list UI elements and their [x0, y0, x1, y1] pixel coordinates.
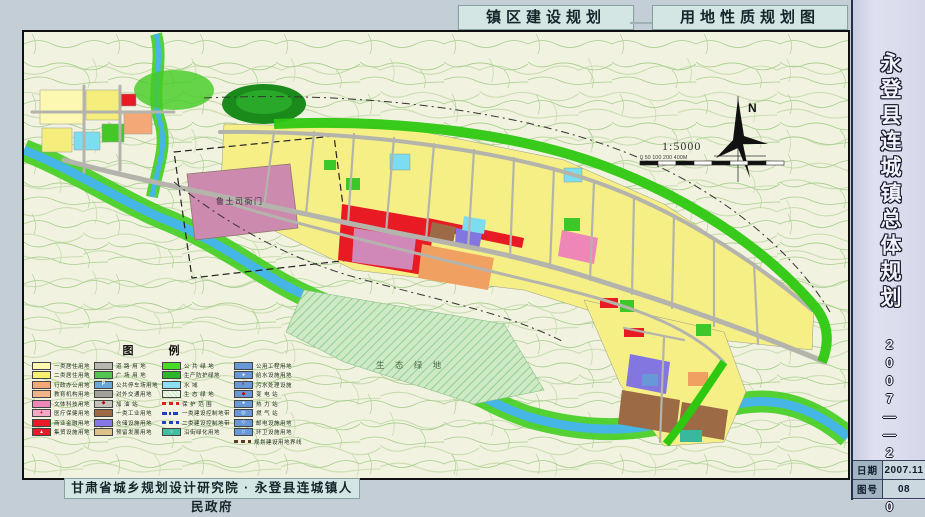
- legend-label: 公用工程用地: [256, 362, 292, 370]
- legend-swatch: +: [32, 409, 51, 417]
- legend-item: 规划建设用地界线: [234, 438, 302, 445]
- legend-label: 保 护 范 围: [182, 400, 212, 408]
- legend-swatch: [162, 381, 181, 389]
- legend-label: 热 力 站: [256, 400, 278, 408]
- legend-item: 水 域: [162, 381, 230, 388]
- legend-item: 文体科技用地: [32, 400, 90, 407]
- legend-swatch: [32, 390, 51, 398]
- legend-label: 二类居住用地: [54, 371, 90, 379]
- legend-item: 二类居住用地: [32, 372, 90, 379]
- legend-swatch: [32, 419, 51, 427]
- legend-swatch-mark: □: [242, 430, 245, 435]
- legend-swatch: ◎: [234, 409, 253, 417]
- legend-item: ●给水设施用地: [234, 372, 302, 379]
- sidebar-vertical-title: 永登县连城镇总体规划 2007——2020: [874, 52, 904, 517]
- legend-item: 公用工程用地: [234, 362, 302, 369]
- map-frame: N 1:5000 0 50 100 200 400M 鲁土司衙门 生 态 绿 地…: [22, 30, 850, 480]
- legend-swatch: ●: [234, 400, 253, 408]
- legend-label: 环卫设施用地: [256, 428, 292, 436]
- sheet-info-table: 日期 2007.11 图号 08: [853, 460, 925, 499]
- legend-columns: 一类居住用地二类居住用地行政办公用地教育机构用地文体科技用地+医疗保健用地商业金…: [32, 362, 270, 445]
- legend-item: 广 场 用 地: [94, 372, 158, 379]
- legend-item: ◎燃 气 站: [234, 410, 302, 417]
- legend-swatch: ●: [234, 371, 253, 379]
- sheet-title-left: 镇区建设规划: [458, 5, 634, 30]
- legend-label: 商业金融用地: [54, 419, 90, 427]
- legend-item: ◆变 电 站: [234, 391, 302, 398]
- legend-item: 生产防护绿地: [162, 372, 230, 379]
- legend-label: 预留发展用地: [116, 428, 152, 436]
- legend-label: 文体科技用地: [54, 400, 90, 408]
- legend-item: 仓储设施用地: [94, 419, 158, 426]
- legend-item: ◆加 油 站: [94, 400, 158, 407]
- legend-label: 变 电 站: [256, 390, 278, 398]
- legend-swatch: [162, 362, 181, 370]
- legend-label: 加 油 站: [116, 400, 138, 408]
- legend-label: 对外交通用地: [116, 390, 152, 398]
- sheet-number-value: 08: [883, 480, 925, 498]
- legend-swatch: [32, 362, 51, 370]
- legend-label: 一类建设控制地带: [182, 409, 230, 417]
- legend-label: 公共停车场用地: [116, 381, 158, 389]
- legend-label: 规划建设用地界线: [254, 438, 302, 446]
- legend-swatch-mark: ◎: [241, 411, 245, 416]
- legend-swatch-mark: +: [40, 411, 43, 416]
- legend-swatch-mark: ●: [242, 373, 245, 378]
- legend-swatch: [94, 419, 113, 427]
- legend-item: 对外交通用地: [94, 391, 158, 398]
- legend-label: 公 共 绿 地: [184, 362, 214, 370]
- legend-item: 行政办公用地: [32, 381, 90, 388]
- legend-label: 集贸设施用地: [54, 428, 90, 436]
- sheet-number-row: 图号 08: [853, 480, 925, 499]
- legend-swatch-mark: ◇: [242, 420, 246, 425]
- legend-column: 道 路 用 地广 场 用 地P公共停车场用地对外交通用地◆加 油 站一类工业用地…: [94, 362, 158, 445]
- legend-swatch: ○: [162, 428, 181, 436]
- legend-item: ◐污水处理设施: [234, 381, 302, 388]
- legend-item: P公共停车场用地: [94, 381, 158, 388]
- legend-swatch-mark: ◐: [242, 382, 245, 387]
- legend-swatch: [94, 428, 113, 436]
- legend-swatch-mark: ▲: [39, 430, 44, 435]
- legend-label: 二类建设控制地带: [182, 419, 230, 427]
- legend-swatch: ◇: [234, 419, 253, 427]
- legend-swatch: [94, 409, 113, 417]
- legend-swatch: ◆: [94, 400, 113, 408]
- legend-item: +医疗保健用地: [32, 410, 90, 417]
- legend-column: 公 共 绿 地生产防护绿地水 域生 态 绿 地保 护 范 围一类建设控制地带二类…: [162, 362, 230, 445]
- legend-item: ◇邮电设施用地: [234, 419, 302, 426]
- legend-swatch: [162, 421, 179, 424]
- date-label: 日期: [853, 461, 883, 479]
- legend-swatch: ◐: [234, 381, 253, 389]
- legend-label: 一类居住用地: [54, 362, 90, 370]
- north-label: N: [748, 101, 757, 115]
- legend-swatch: [234, 362, 253, 370]
- sidebar: 永登县连城镇总体规划 2007——2020 日期 2007.11 图号 08: [851, 0, 925, 500]
- legend-swatch: [94, 371, 113, 379]
- legend-swatch: ◆: [234, 390, 253, 398]
- legend-item: 预留发展用地: [94, 429, 158, 436]
- legend-item: ●热 力 站: [234, 400, 302, 407]
- legend-item: 一类工业用地: [94, 410, 158, 417]
- legend-label: 污水处理设施: [256, 381, 292, 389]
- scale-text: 1:5000: [662, 139, 701, 153]
- date-row: 日期 2007.11: [853, 461, 925, 480]
- planning-map-sheet: { "header": { "title_left": "镇区建设规划", "t…: [0, 0, 925, 500]
- legend-item: 一类建设控制地带: [162, 410, 230, 417]
- legend-label: 广 场 用 地: [116, 371, 146, 379]
- legend-label: 生 态 绿 地: [184, 390, 214, 398]
- legend-item: 商业金融用地: [32, 419, 90, 426]
- legend-label: 生产防护绿地: [184, 371, 220, 379]
- legend-item: 教育机构用地: [32, 391, 90, 398]
- legend-swatch: [162, 402, 179, 405]
- legend-swatch-mark: ○: [170, 430, 173, 435]
- eco-label: 生 态 绿 地: [376, 360, 445, 370]
- scale-bar-labels: 0 50 100 200 400M: [640, 155, 688, 161]
- plan-title: 永登县连城镇总体规划: [878, 52, 901, 312]
- legend-item: 二类建设控制地带: [162, 419, 230, 426]
- legend-label: 教育机构用地: [54, 390, 90, 398]
- legend-swatch: □: [234, 428, 253, 436]
- legend-label: 邮电设施用地: [256, 419, 292, 427]
- legend-label: 给水设施用地: [256, 371, 292, 379]
- legend-label: 沿街绿化用地: [184, 428, 220, 436]
- legend-swatch: [32, 400, 51, 408]
- legend-label: 医疗保健用地: [54, 409, 90, 417]
- legend-item: 道 路 用 地: [94, 362, 158, 369]
- legend-label: 行政办公用地: [54, 381, 90, 389]
- legend-item: 公 共 绿 地: [162, 362, 230, 369]
- legend-swatch: [94, 362, 113, 370]
- credit-box: 甘肃省城乡规划设计研究院 · 永登县连城镇人民政府: [64, 478, 360, 499]
- legend-swatch: [32, 381, 51, 389]
- legend-swatch-mark: ◆: [102, 401, 106, 406]
- date-value: 2007.11: [883, 461, 925, 479]
- legend-swatch: [32, 371, 51, 379]
- legend-swatch-mark: ●: [242, 401, 245, 406]
- legend-item: ○沿街绿化用地: [162, 429, 230, 436]
- legend-swatch: [234, 440, 251, 443]
- legend-label: 一类工业用地: [116, 409, 152, 417]
- heritage-label: 鲁土司衙门: [216, 196, 264, 206]
- legend-item: □环卫设施用地: [234, 429, 302, 436]
- legend-item: ▲集贸设施用地: [32, 429, 90, 436]
- legend-label: 燃 气 站: [256, 409, 278, 417]
- legend-column: 一类居住用地二类居住用地行政办公用地教育机构用地文体科技用地+医疗保健用地商业金…: [32, 362, 90, 445]
- legend-swatch-mark: P: [102, 382, 105, 387]
- legend-title: 图 例: [32, 342, 270, 358]
- legend-swatch: [162, 390, 181, 398]
- legend-label: 仓储设施用地: [116, 419, 152, 427]
- sheet-number-label: 图号: [853, 480, 883, 498]
- legend-swatch: [162, 371, 181, 379]
- legend-swatch-mark: ◆: [242, 392, 246, 397]
- legend-label: 水 域: [184, 381, 198, 389]
- legend-item: 一类居住用地: [32, 362, 90, 369]
- legend-item: 生 态 绿 地: [162, 391, 230, 398]
- legend-swatch: P: [94, 381, 113, 389]
- legend-label: 道 路 用 地: [116, 362, 146, 370]
- legend-column: 公用工程用地●给水设施用地◐污水处理设施◆变 电 站●热 力 站◎燃 气 站◇邮…: [234, 362, 302, 445]
- legend-swatch: [162, 412, 179, 415]
- legend-swatch: [94, 390, 113, 398]
- title-divider: [630, 22, 654, 24]
- legend: 图 例 一类居住用地二类居住用地行政办公用地教育机构用地文体科技用地+医疗保健用…: [32, 342, 270, 474]
- legend-swatch: ▲: [32, 428, 51, 436]
- legend-item: 保 护 范 围: [162, 400, 230, 407]
- sheet-title-right: 用地性质规划图: [652, 5, 848, 30]
